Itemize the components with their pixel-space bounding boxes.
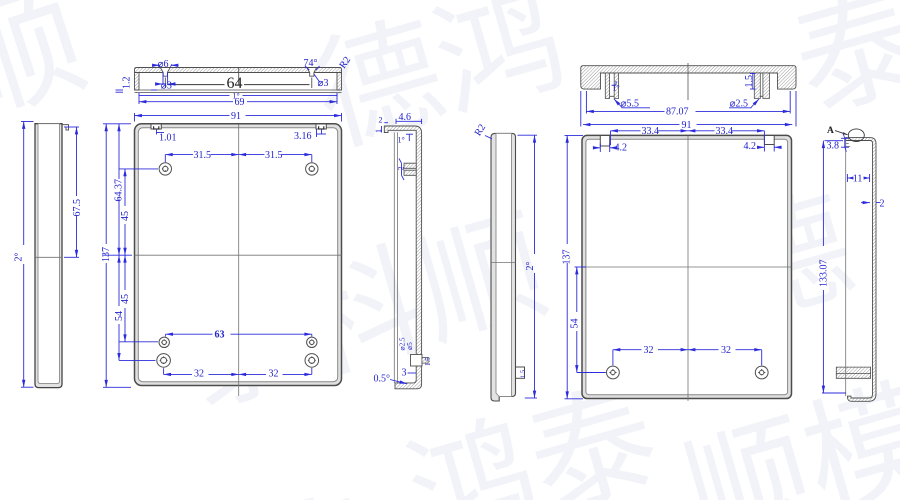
svg-text:11: 11	[853, 173, 863, 184]
svg-text:1.2: 1.2	[122, 77, 133, 90]
svg-text:⌀2.5: ⌀2.5	[730, 98, 749, 109]
svg-text:2°: 2°	[525, 262, 536, 271]
svg-text:3.8: 3.8	[827, 141, 840, 152]
svg-text:87.07: 87.07	[666, 107, 689, 118]
svg-text:3: 3	[402, 368, 407, 379]
svg-text:91: 91	[682, 120, 692, 131]
svg-text:2: 2	[397, 167, 406, 171]
svg-text:54: 54	[570, 319, 581, 329]
svg-text:顺: 顺	[0, 0, 102, 144]
svg-text:4.6: 4.6	[399, 112, 412, 123]
svg-text:137: 137	[101, 247, 112, 262]
svg-text:74°: 74°	[304, 58, 318, 69]
svg-text:64.37: 64.37	[114, 179, 125, 202]
svg-text:67.5: 67.5	[72, 199, 83, 217]
svg-text:32: 32	[721, 345, 731, 356]
svg-text:顺德: 顺德	[110, 482, 388, 500]
svg-text:54: 54	[114, 311, 125, 321]
svg-text:⌀5.5: ⌀5.5	[621, 98, 640, 109]
svg-text:⌀3: ⌀3	[161, 81, 172, 92]
svg-text:0.5°: 0.5°	[374, 373, 391, 384]
svg-text:33.4: 33.4	[642, 126, 660, 137]
svg-text:2°: 2°	[14, 253, 25, 262]
svg-text:32: 32	[644, 345, 654, 356]
svg-text:137: 137	[562, 250, 573, 265]
svg-text:1.5: 1.5	[424, 357, 432, 366]
svg-text:1°: 1°	[398, 135, 405, 144]
svg-text:32: 32	[194, 369, 204, 380]
svg-text:⌀6: ⌀6	[158, 59, 169, 70]
svg-text:31.5: 31.5	[194, 150, 212, 161]
svg-text:33.4: 33.4	[716, 126, 734, 137]
svg-text:63: 63	[215, 330, 225, 341]
svg-text:45: 45	[120, 294, 131, 304]
svg-text:4.2: 4.2	[744, 141, 757, 152]
svg-text:4.2: 4.2	[615, 142, 628, 153]
svg-text:64: 64	[227, 75, 243, 92]
svg-text:1.5: 1.5	[744, 75, 755, 88]
svg-text:45: 45	[120, 211, 131, 221]
svg-text:32: 32	[269, 369, 279, 380]
svg-text:A: A	[827, 126, 834, 136]
svg-text:泰: 泰	[780, 0, 900, 137]
svg-text:1°: 1°	[613, 84, 620, 93]
svg-text:⌀5: ⌀5	[406, 342, 414, 350]
svg-text:⌀3: ⌀3	[318, 78, 329, 89]
svg-text:69: 69	[235, 97, 245, 108]
svg-text:31.5: 31.5	[265, 150, 283, 161]
svg-text:2: 2	[379, 115, 383, 124]
svg-text:133.07: 133.07	[819, 260, 830, 288]
svg-text:1.5: 1.5	[520, 370, 527, 378]
svg-text:1: 1	[374, 129, 383, 133]
svg-text:1.01: 1.01	[159, 133, 177, 144]
svg-text:91: 91	[231, 111, 241, 122]
svg-text:2: 2	[880, 198, 885, 209]
svg-text:德鸿: 德鸿	[301, 0, 579, 171]
svg-text:3.16: 3.16	[294, 131, 312, 142]
